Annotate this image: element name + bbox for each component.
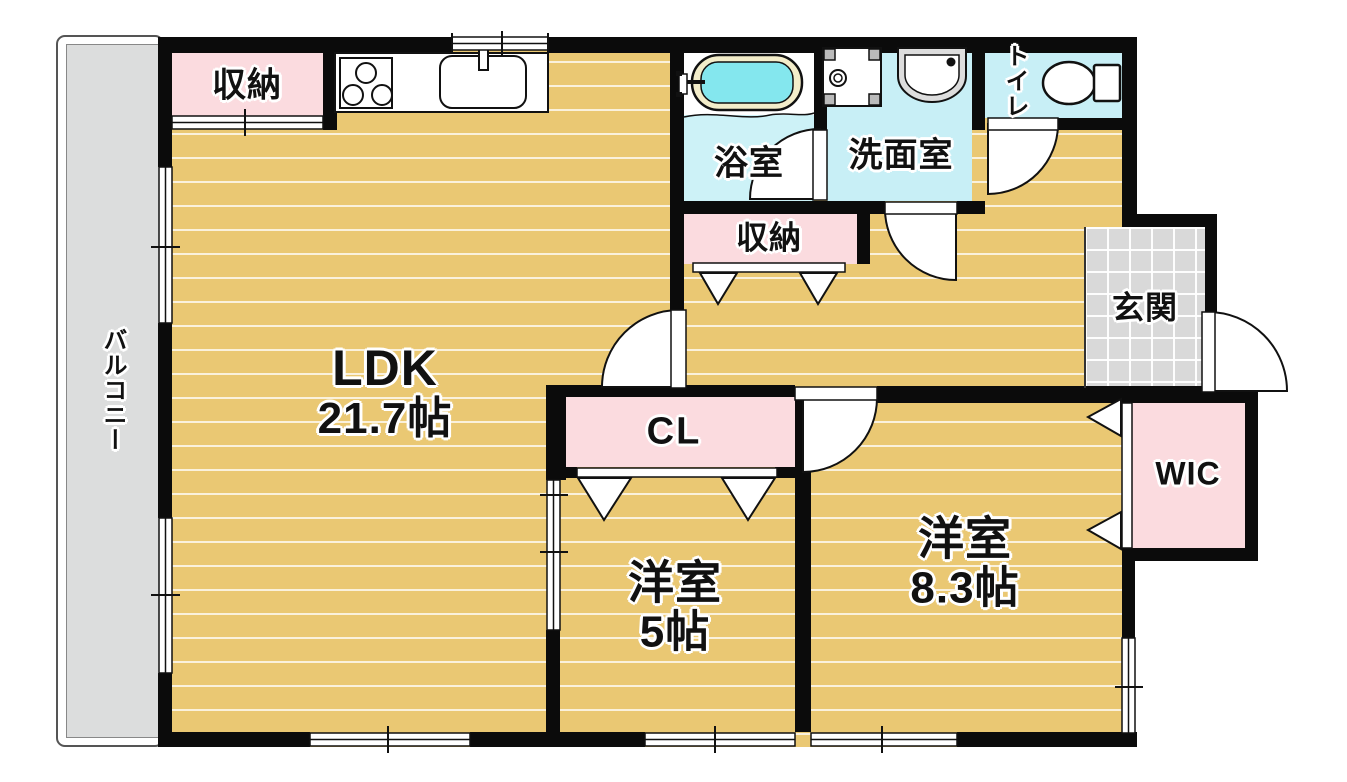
ldk-size: 21.7帖 (318, 395, 453, 443)
wall (1122, 561, 1135, 638)
room-label-bath: 浴室 (714, 146, 784, 183)
wall (795, 397, 811, 732)
wall (1122, 214, 1217, 227)
wall (814, 37, 827, 130)
wall (158, 37, 172, 167)
wall (1058, 118, 1122, 130)
wall (546, 630, 560, 732)
wall (323, 37, 337, 130)
wall (1205, 227, 1217, 312)
entrance-door (1202, 312, 1287, 392)
bedroom83-size: 8.3帖 (910, 564, 1019, 612)
room-label-balcony: バルコニー (99, 328, 125, 453)
room-label-wic: WIC (1155, 457, 1220, 492)
floor-plan: LDK 21.7帖 洋室 5帖 洋室 8.3帖 浴室 洗面室 トイレ 玄関 バル… (0, 0, 1347, 782)
bedroom83-name: 洋室 (910, 514, 1019, 564)
wall (670, 201, 885, 214)
wall (470, 732, 645, 747)
room-label-kitchen-storage: 収納 (212, 68, 282, 105)
room-label-toilet: トイレ (1001, 44, 1027, 119)
room-label-ldk: LDK 21.7帖 (318, 341, 453, 443)
room-label-closet: CL (647, 411, 702, 452)
wall (160, 37, 452, 53)
wall (158, 323, 172, 518)
room-label-bedroom5: 洋室 5帖 (628, 558, 722, 655)
wall (877, 386, 1258, 403)
ldk-name: LDK (318, 341, 453, 395)
room-label-washroom: 洗面室 (849, 138, 954, 175)
wall (1122, 548, 1258, 561)
wall (857, 202, 870, 264)
wall (1122, 37, 1137, 218)
wall (670, 37, 684, 310)
wall (548, 37, 1137, 53)
washroom-floor (827, 53, 972, 201)
bath-tub-deck (684, 53, 814, 115)
wall (546, 385, 795, 397)
wall (775, 467, 807, 478)
room-label-entrance: 玄関 (1112, 291, 1178, 326)
bedroom5-name: 洋室 (628, 558, 722, 608)
wall (158, 732, 310, 747)
wall (1245, 386, 1258, 561)
wall (972, 37, 985, 130)
wall (957, 201, 985, 214)
wall (548, 467, 577, 478)
bedroom5-size: 5帖 (628, 608, 722, 656)
room-label-hall-storage: 収納 (736, 221, 802, 256)
room-label-bedroom83: 洋室 8.3帖 (910, 514, 1019, 611)
wall (957, 732, 1137, 747)
